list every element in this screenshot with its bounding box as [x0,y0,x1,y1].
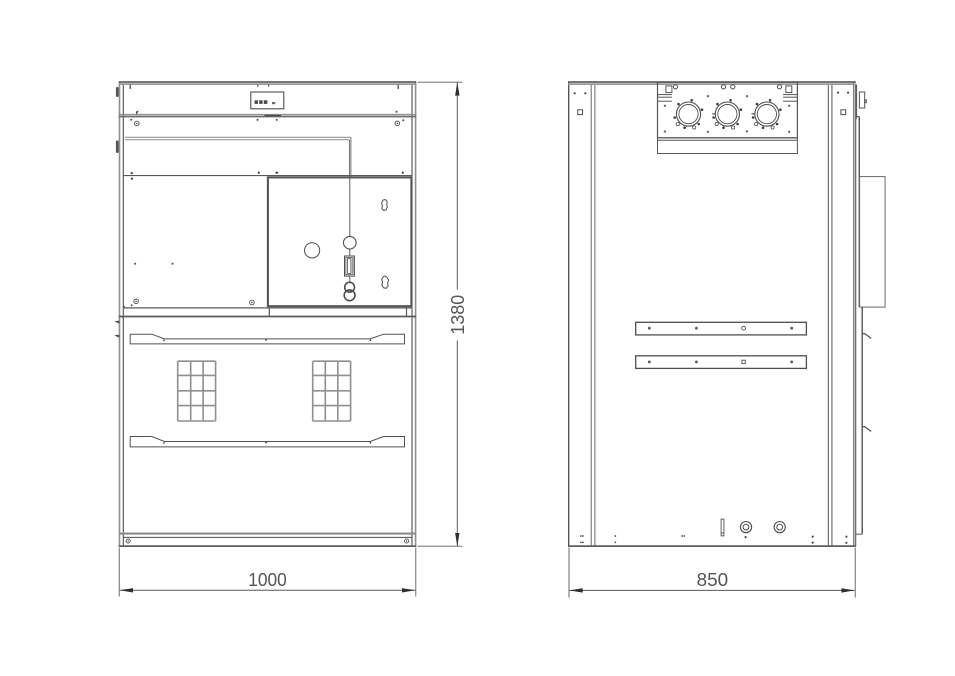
svg-text:850: 850 [697,569,729,590]
svg-text:1000: 1000 [248,569,287,590]
svg-text:1380: 1380 [447,295,468,335]
